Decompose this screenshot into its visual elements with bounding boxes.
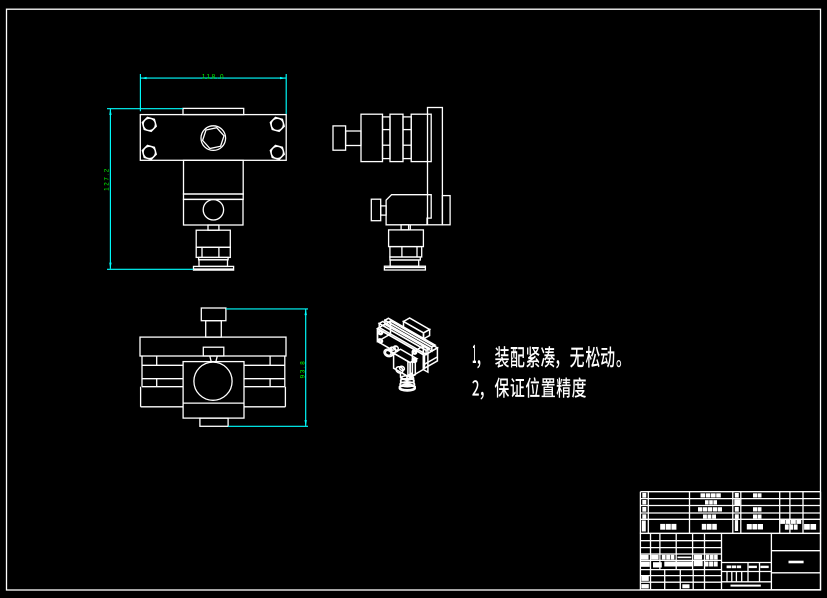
- svg-text:93.8: 93.8: [299, 360, 306, 379]
- svg-text:127.2: 127.2: [104, 167, 111, 191]
- svg-text:118.0: 118.0: [202, 73, 225, 80]
